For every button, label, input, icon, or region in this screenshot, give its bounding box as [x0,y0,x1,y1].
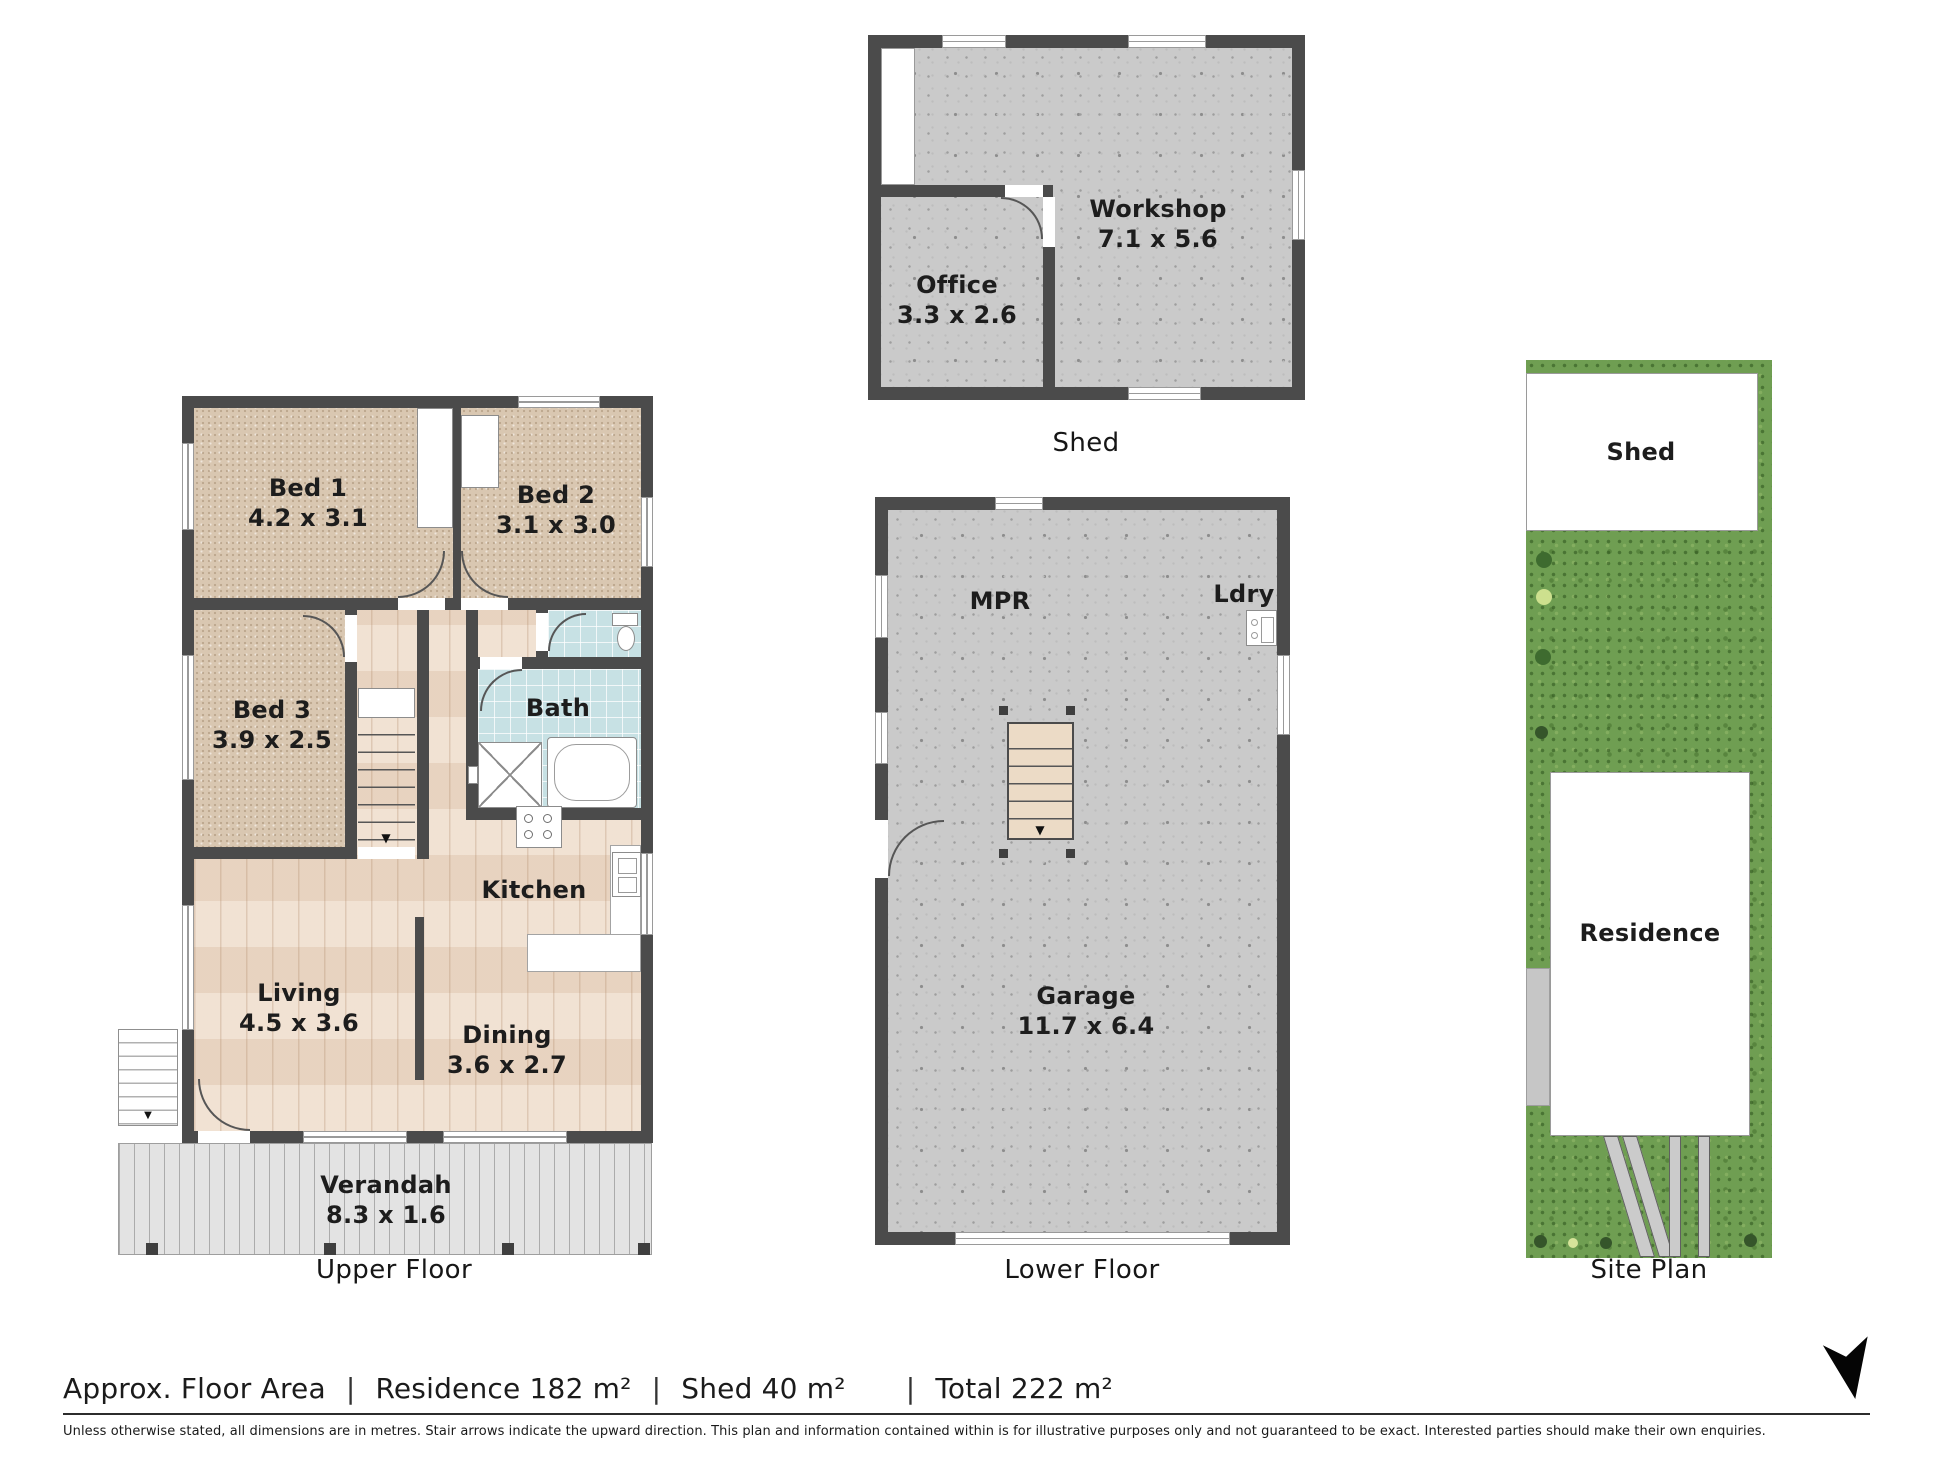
wall [466,610,478,820]
window [518,396,600,408]
stair-opening [358,847,415,859]
shrub [1536,552,1552,568]
shrub [1568,1238,1578,1248]
window [875,575,888,638]
plan-title-shed: Shed [1052,428,1119,458]
area-label: Approx. Floor Area [63,1372,326,1405]
separator: | [652,1372,662,1405]
room-label-garage: Garage11.7 x 6.4 [1018,981,1155,1041]
wall [182,1131,653,1143]
shrub [1535,726,1548,739]
linen-cupboard [358,688,415,718]
vanity [478,742,542,808]
window [995,497,1043,510]
driveway-strip [1698,1136,1710,1257]
plan-title-site: Site Plan [1590,1255,1707,1285]
post [999,706,1008,715]
door-opening [1005,185,1043,197]
wardrobe [417,408,453,528]
site-label-residence: Residence [1579,918,1720,948]
verandah-post [502,1243,514,1255]
window [942,35,1006,48]
room-label-bath: Bath [526,693,590,723]
plan-title-upper: Upper Floor [316,1255,472,1285]
room-label-ldry: Ldry [1213,579,1274,609]
door-opening [398,598,445,610]
room-label-office: Office3.3 x 2.6 [897,270,1017,330]
window [1128,35,1206,48]
wall [453,408,461,598]
toilet-bowl [617,626,635,651]
window [182,443,194,530]
floorplan-sheet: ▼ ▼ Bed 14.2 x 3.1 [0,0,1942,1457]
door-opening [461,598,508,610]
shrub [1535,649,1551,665]
lower-floor-slab [888,510,1277,1232]
residence-area: Residence 182 m² [375,1372,631,1405]
window [1292,170,1305,240]
kitchen-counter [527,934,641,972]
room-label-bed1: Bed 14.2 x 3.1 [248,473,368,533]
wall [417,610,429,859]
door-opening [875,820,888,878]
separator: | [346,1372,356,1405]
total-area: Total 222 m² [935,1372,1113,1405]
verandah-post [324,1243,336,1255]
room-label-workshop: Workshop7.1 x 5.6 [1089,194,1226,254]
shrub [1534,1235,1547,1248]
post [999,849,1008,858]
post [1066,849,1075,858]
stair-direction-arrow: ▼ [381,832,390,844]
internal-stairs [358,718,415,847]
window [641,853,653,935]
window [641,497,653,567]
wall [868,35,881,400]
room-label-mpr: MPR [970,586,1031,616]
shed-door-recess [881,48,915,185]
garage-door [955,1232,1230,1245]
door-opening [198,1131,250,1143]
door-opening [536,613,548,651]
site-label-shed: Shed [1606,437,1675,467]
wall [1277,497,1290,1245]
window [875,712,888,764]
wall [875,497,1290,510]
stair-direction-arrow: ▼ [144,1111,152,1121]
wardrobe [461,415,499,488]
shed-floor [881,48,1292,387]
driveway-strip [1669,1136,1681,1257]
sliding-door [443,1131,567,1143]
shrub [1744,1234,1757,1247]
divider-line [63,1413,1870,1415]
disclaimer-text: Unless otherwise stated, all dimensions … [63,1424,1766,1439]
wall [182,847,357,859]
room-label-living: Living4.5 x 3.6 [239,978,359,1038]
door-opening [480,657,522,669]
wall [868,35,1305,48]
bathtub-inner [554,744,630,801]
door-opening [345,615,357,662]
site-side-path [1526,968,1550,1106]
verandah-post [638,1243,650,1255]
shed-area: Shed 40 m² [681,1372,845,1405]
separator: | [906,1372,916,1405]
room-label-kitchen: Kitchen [481,875,586,905]
kitchen-sink [612,852,641,897]
north-arrow-icon [1818,1333,1872,1401]
room-label-bed3: Bed 33.9 x 2.5 [212,695,332,755]
floor-area-summary: Approx. Floor Area|Residence 182 m²|Shed… [63,1372,1113,1405]
window [1128,387,1201,400]
site-residence-outline [1550,772,1750,1136]
window [182,905,194,1030]
stair-direction-arrow: ▼ [1035,824,1044,836]
shrub [1536,589,1552,605]
tap [468,766,478,784]
verandah-post [146,1243,158,1255]
window [1277,655,1290,735]
stove [516,806,562,848]
room-label-bed2: Bed 23.1 x 3.0 [496,480,616,540]
window [303,1131,407,1143]
room-label-dining: Dining3.6 x 2.7 [447,1020,567,1080]
window [182,655,194,780]
toilet-cistern [612,613,638,626]
laundry-tub [1246,610,1277,646]
living-dining-divider-wall [415,917,424,1080]
bathtub [547,737,637,808]
wall [868,387,1305,400]
room-label-verandah: Verandah8.3 x 1.6 [320,1170,452,1230]
post [1066,706,1075,715]
plan-title-lower: Lower Floor [1004,1255,1159,1285]
door-leaf [1043,197,1055,247]
shrub [1600,1237,1612,1249]
